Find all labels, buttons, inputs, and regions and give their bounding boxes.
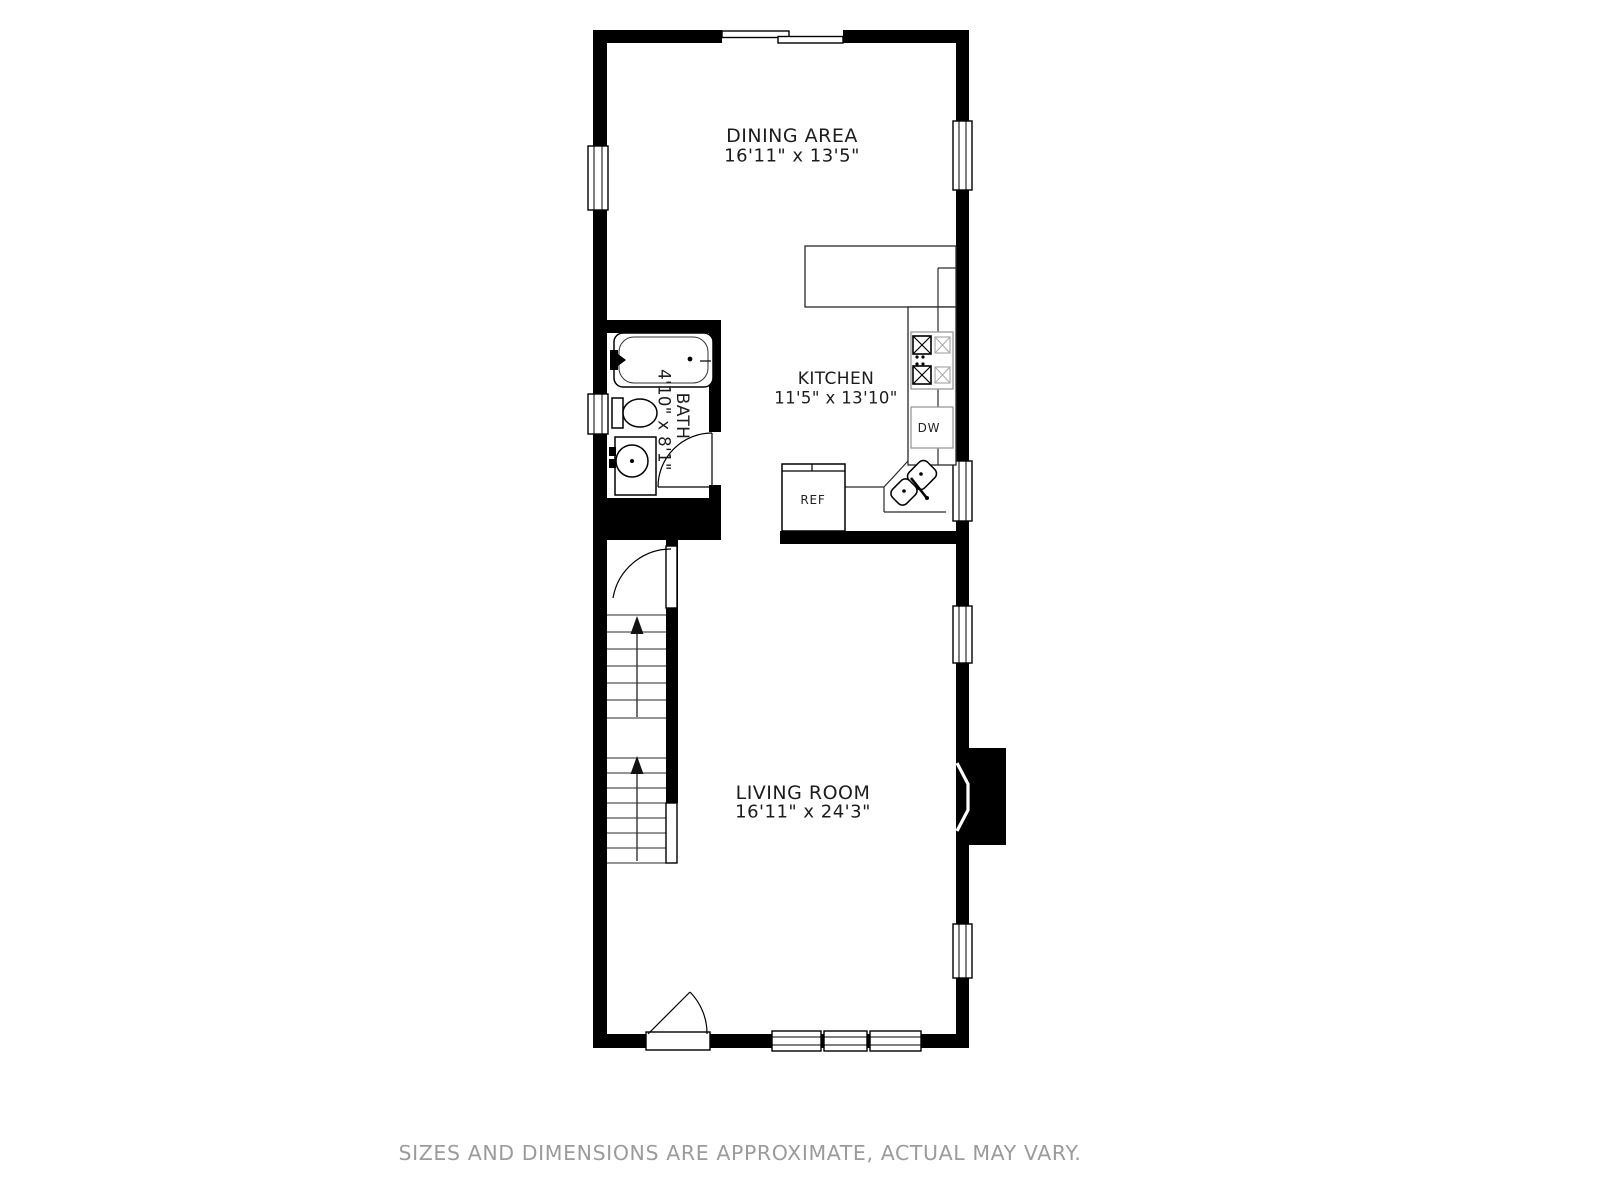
wall-kitchen-bottom — [780, 531, 969, 544]
wall-bath-top — [604, 320, 721, 333]
room-living: LIVING ROOM 16'11" x 24'3" — [646, 782, 871, 1050]
dishwasher: DW — [911, 407, 953, 448]
window-living-bottom-2 — [824, 1031, 867, 1051]
dining-area-dimensions: 16'11" x 13'5" — [724, 146, 860, 167]
tub-drain — [688, 357, 693, 362]
stove-knob — [921, 362, 924, 365]
stove-knob — [915, 355, 918, 358]
stair-door — [613, 546, 677, 608]
stove-knob — [921, 355, 924, 358]
wall-top-left — [593, 30, 722, 43]
room-bath: BATH 4'10" x 8'1" — [609, 333, 713, 495]
window-dining-left — [588, 146, 608, 210]
sliding-door-panel-right — [778, 37, 843, 44]
wall-bath-stair-band — [595, 498, 721, 540]
room-dining-area: DINING AREA 16'11" x 13'5" — [724, 125, 860, 167]
living-room-dimensions: 16'11" x 24'3" — [735, 802, 871, 823]
stove — [911, 332, 953, 389]
stove-knob — [915, 362, 918, 365]
window-dining-right — [953, 121, 972, 190]
kitchen-dimensions: 11'5" x 13'10" — [774, 389, 898, 408]
floor-plan-svg: DINING AREA 16'11" x 13'5" DW — [0, 0, 1600, 1200]
stair-railing — [666, 803, 677, 863]
dining-area-label: DINING AREA — [726, 125, 858, 147]
room-kitchen: DW REF KITCHEN 11'5" x 13'10" — [774, 246, 956, 531]
fireplace-block — [956, 748, 1006, 845]
window-living-right-lower — [953, 924, 972, 978]
window-living-bottom-3 — [870, 1031, 921, 1051]
entry-door — [646, 992, 710, 1050]
sliding-door-top — [722, 31, 843, 43]
window-kitchen-right — [953, 461, 972, 521]
window-bath-left — [588, 394, 608, 434]
kitchen-label: KITCHEN — [798, 369, 874, 389]
refrigerator: REF — [782, 464, 845, 531]
kitchen-counter-peninsula — [805, 246, 956, 307]
stair-arrow-lower — [631, 756, 644, 861]
wall-top-right — [843, 30, 969, 43]
toilet — [612, 398, 657, 428]
bath-dimensions: 4'10" x 8'1" — [655, 369, 674, 471]
refrigerator-label: REF — [800, 493, 825, 507]
bath-sink — [609, 437, 656, 495]
floor-plan-page: DINING AREA 16'11" x 13'5" DW — [0, 0, 1600, 1200]
window-living-right-upper — [953, 606, 972, 663]
dishwasher-label: DW — [918, 421, 941, 435]
walls — [593, 30, 1006, 1048]
footer-disclaimer: SIZES AND DIMENSIONS ARE APPROXIMATE, AC… — [399, 1141, 1082, 1165]
tub-faucet — [610, 350, 618, 370]
window-living-bottom-1 — [772, 1031, 821, 1051]
bath-label: BATH — [672, 393, 692, 440]
